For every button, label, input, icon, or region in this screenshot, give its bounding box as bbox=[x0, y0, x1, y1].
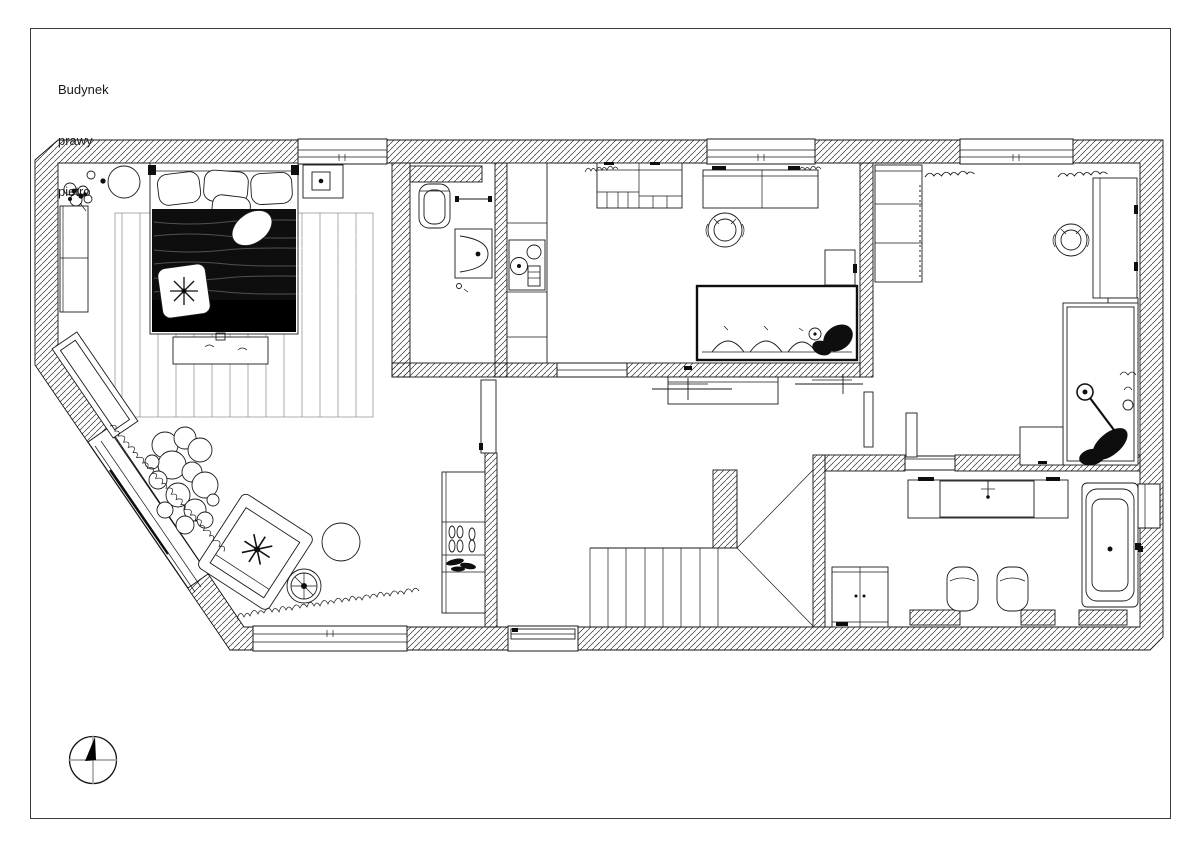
window-bottom-2 bbox=[508, 626, 578, 651]
star-pillow bbox=[157, 263, 211, 319]
vanity-basin bbox=[908, 477, 1068, 518]
room-door bbox=[864, 392, 873, 447]
bathroom-cabinet bbox=[832, 567, 888, 627]
bench bbox=[173, 333, 268, 364]
wardrobe bbox=[60, 206, 88, 312]
toilet bbox=[419, 184, 450, 228]
shoe-rack bbox=[442, 472, 485, 613]
curtain-right-room-1 bbox=[925, 171, 975, 177]
lounger bbox=[1063, 303, 1138, 468]
office-chair bbox=[706, 213, 744, 247]
wheel-table bbox=[287, 569, 321, 603]
side-cabinet bbox=[825, 250, 857, 285]
stool-right bbox=[997, 567, 1028, 611]
office-chair-2 bbox=[1053, 224, 1089, 256]
window-top-3 bbox=[960, 139, 1073, 164]
sofa-cushions bbox=[712, 326, 816, 352]
nightstand-lamp bbox=[303, 165, 343, 198]
curtain-right-room-2 bbox=[1058, 171, 1108, 177]
bathroom-door bbox=[905, 413, 955, 470]
drawing-page: Budynek prawy pietro bbox=[0, 0, 1200, 848]
towel-rail bbox=[455, 196, 492, 202]
north-arrow bbox=[69, 736, 117, 784]
round-table bbox=[322, 523, 360, 561]
shelving-unit bbox=[597, 162, 682, 208]
desk bbox=[703, 166, 818, 208]
kitchenette-counter bbox=[507, 163, 547, 363]
window-top-2 bbox=[707, 139, 815, 164]
decor-circles bbox=[87, 166, 140, 198]
sofa bbox=[697, 286, 858, 360]
desk-2 bbox=[1093, 178, 1138, 298]
hall-door bbox=[479, 380, 496, 453]
bathtub bbox=[1082, 483, 1141, 607]
wardrobe-2 bbox=[875, 165, 922, 282]
stairs bbox=[590, 548, 737, 627]
hall-cabinet bbox=[668, 377, 778, 404]
small-table bbox=[1020, 427, 1063, 465]
washbasin bbox=[455, 229, 492, 292]
window-top-1 bbox=[298, 139, 387, 164]
stool-left bbox=[947, 567, 978, 611]
stairwell-void bbox=[737, 470, 813, 626]
window-bottom-1 bbox=[253, 626, 407, 651]
floor-plan-svg bbox=[0, 0, 1200, 848]
